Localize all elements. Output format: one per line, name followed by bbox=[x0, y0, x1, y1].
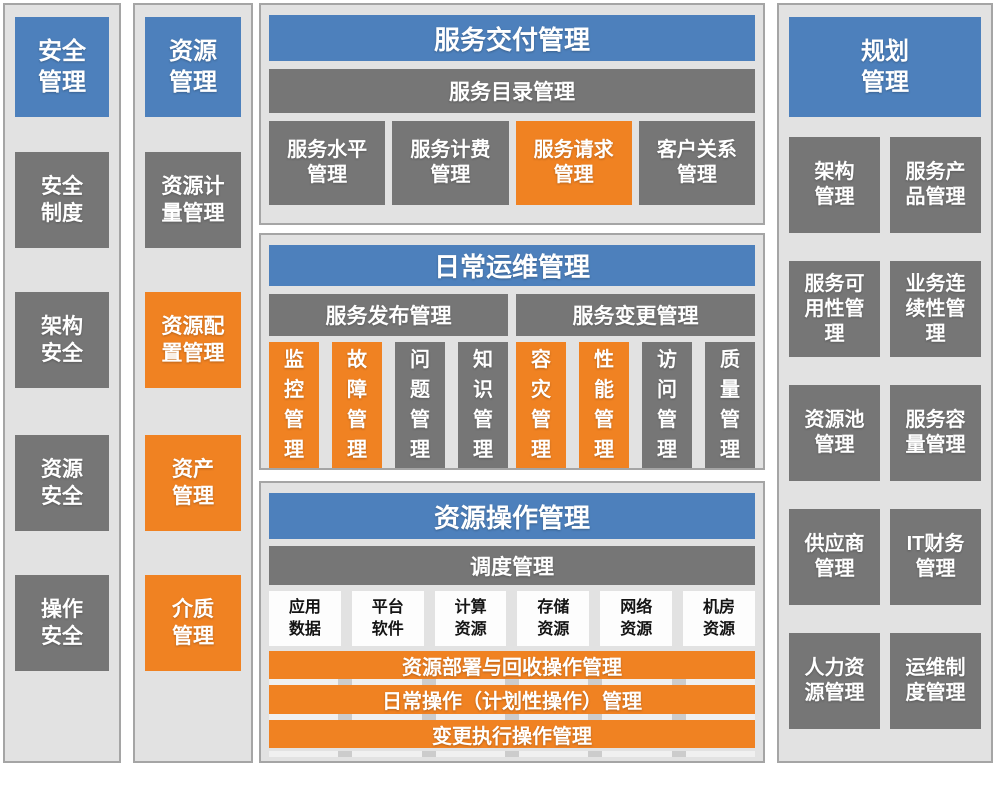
security-item: 架构 安全 bbox=[15, 292, 109, 388]
resource-type: 应用 数据 bbox=[269, 591, 341, 646]
resource-type: 机房 资源 bbox=[683, 591, 755, 646]
daily-ops-item: 质 量 管 理 bbox=[705, 342, 755, 468]
resource-ops-bar: 变更执行操作管理 bbox=[269, 720, 755, 748]
daily-ops-panel: 日常运维管理 服务发布管理 监 控 管 理 故 障 管 理 问 题 管 理 知 … bbox=[259, 233, 765, 470]
resource-ops-bar: 日常操作（计划性操作）管理 bbox=[269, 685, 755, 714]
daily-ops-item: 访 问 管 理 bbox=[642, 342, 692, 468]
daily-ops-item: 问 题 管 理 bbox=[395, 342, 445, 468]
it-management-framework-diagram: 安全 管理 安全 制度 架构 安全 资源 安全 操作 安全 资源 管理 资源计 … bbox=[0, 0, 1000, 785]
daily-ops-item: 故 障 管 理 bbox=[332, 342, 382, 468]
planning-panel-title: 规划 管理 bbox=[789, 17, 981, 117]
planning-item: 人力资 源管理 bbox=[789, 633, 880, 729]
resource-type: 网络 资源 bbox=[600, 591, 672, 646]
resource-item: 资源配 置管理 bbox=[145, 292, 241, 388]
change-items: 容 灾 管 理 性 能 管 理 访 问 管 理 质 量 管 理 bbox=[516, 342, 755, 468]
daily-ops-item: 监 控 管 理 bbox=[269, 342, 319, 468]
change-bar: 服务变更管理 bbox=[516, 294, 755, 336]
change-group: 服务变更管理 容 灾 管 理 性 能 管 理 访 问 管 理 质 量 管 理 bbox=[516, 294, 755, 468]
resource-type-row: 应用 数据 平台 软件 计算 资源 存储 资源 网络 资源 机房 资源 bbox=[269, 591, 755, 646]
resource-type: 存储 资源 bbox=[517, 591, 589, 646]
resource-item: 介质 管理 bbox=[145, 575, 241, 671]
planning-item: 服务容 量管理 bbox=[890, 385, 981, 481]
service-delivery-item: 服务计费 管理 bbox=[392, 121, 508, 205]
security-item: 安全 制度 bbox=[15, 152, 109, 248]
service-delivery-title: 服务交付管理 bbox=[269, 15, 755, 61]
resource-item: 资源计 量管理 bbox=[145, 152, 241, 248]
security-panel: 安全 管理 安全 制度 架构 安全 资源 安全 操作 安全 bbox=[3, 3, 121, 763]
daily-ops-item: 容 灾 管 理 bbox=[516, 342, 566, 468]
planning-grid: 架构 管理 服务产 品管理 服务可 用性管 理 业务连 续性管 理 资源池 管理… bbox=[789, 137, 981, 729]
planning-panel: 规划 管理 架构 管理 服务产 品管理 服务可 用性管 理 业务连 续性管 理 … bbox=[777, 3, 993, 763]
resource-ops-bar: 资源部署与回收操作管理 bbox=[269, 651, 755, 679]
planning-item: 供应商 管理 bbox=[789, 509, 880, 605]
resource-ops-title: 资源操作管理 bbox=[269, 493, 755, 539]
resource-item: 资产 管理 bbox=[145, 435, 241, 531]
planning-item: 架构 管理 bbox=[789, 137, 880, 233]
daily-ops-item: 知 识 管 理 bbox=[458, 342, 508, 468]
resource-ops-panel: 资源操作管理 调度管理 应用 数据 平台 软件 计算 资源 存储 资源 网络 资… bbox=[259, 481, 765, 763]
security-item: 操作 安全 bbox=[15, 575, 109, 671]
security-item: 资源 安全 bbox=[15, 435, 109, 531]
planning-item: 服务可 用性管 理 bbox=[789, 261, 880, 357]
row-divider bbox=[269, 751, 755, 757]
service-delivery-item: 客户关系 管理 bbox=[639, 121, 755, 205]
planning-item: 业务连 续性管 理 bbox=[890, 261, 981, 357]
planning-item: 资源池 管理 bbox=[789, 385, 880, 481]
security-panel-title: 安全 管理 bbox=[15, 17, 109, 117]
release-items: 监 控 管 理 故 障 管 理 问 题 管 理 知 识 管 理 bbox=[269, 342, 508, 468]
daily-ops-title: 日常运维管理 bbox=[269, 245, 755, 286]
schedule-bar: 调度管理 bbox=[269, 546, 755, 585]
daily-ops-groups: 服务发布管理 监 控 管 理 故 障 管 理 问 题 管 理 知 识 管 理 服… bbox=[269, 294, 755, 468]
daily-ops-item: 性 能 管 理 bbox=[579, 342, 629, 468]
resource-panel: 资源 管理 资源计 量管理 资源配 置管理 资产 管理 介质 管理 bbox=[133, 3, 253, 763]
release-group: 服务发布管理 监 控 管 理 故 障 管 理 问 题 管 理 知 识 管 理 bbox=[269, 294, 508, 468]
service-delivery-panel: 服务交付管理 服务目录管理 服务水平 管理 服务计费 管理 服务请求 管理 客户… bbox=[259, 3, 765, 225]
service-delivery-item: 服务请求 管理 bbox=[516, 121, 632, 205]
planning-item: 运维制 度管理 bbox=[890, 633, 981, 729]
resource-type: 计算 资源 bbox=[435, 591, 507, 646]
resource-panel-title: 资源 管理 bbox=[145, 17, 241, 117]
service-delivery-item: 服务水平 管理 bbox=[269, 121, 385, 205]
service-delivery-items: 服务水平 管理 服务计费 管理 服务请求 管理 客户关系 管理 bbox=[269, 121, 755, 205]
resource-type: 平台 软件 bbox=[352, 591, 424, 646]
release-bar: 服务发布管理 bbox=[269, 294, 508, 336]
planning-item: IT财务 管理 bbox=[890, 509, 981, 605]
planning-item: 服务产 品管理 bbox=[890, 137, 981, 233]
service-catalog-bar: 服务目录管理 bbox=[269, 69, 755, 113]
